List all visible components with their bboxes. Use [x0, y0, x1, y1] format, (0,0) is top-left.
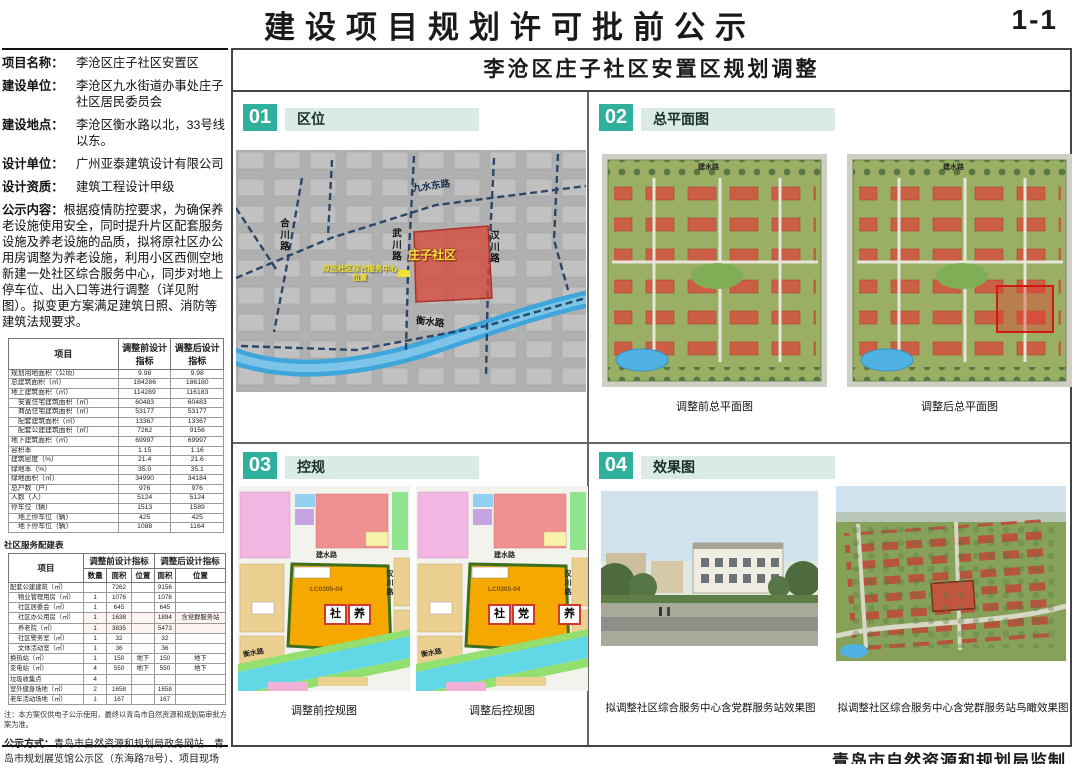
table-row: 商品住宅建筑面积（㎡）5317753177 — [9, 408, 224, 418]
info-line: 公示方式：青岛市自然资源和规划局政务网站、青岛市规划展览馆公示区（东海路78号）… — [4, 737, 226, 764]
section-number-badge: 01 — [243, 104, 277, 131]
table-row: 规划用地面积（公顷）9.989.98 — [9, 369, 224, 379]
section-header-02: 02 总平面图 — [599, 104, 835, 131]
section-label: 总平面图 — [641, 108, 835, 131]
section-label: 区位 — [285, 108, 479, 131]
render-street-view — [601, 491, 818, 646]
table-row: 社区办公用房（㎡）116381894含党群服务站 — [9, 613, 226, 623]
page-title: 建设项目规划许可批前公示 — [0, 2, 1020, 47]
section-location: 01 区位 — [233, 92, 589, 444]
caption-zoning-after: 调整后控规图 — [416, 702, 588, 718]
section-label: 效果图 — [641, 456, 835, 479]
section-label: 控规 — [285, 456, 479, 479]
location-map: 九水东路 合川路 武川路 汉川路 衡水路 庄子社区 拟选社区综合服务中心位置 — [236, 150, 586, 392]
table-row: 文体活动室（㎡）13636 — [9, 644, 226, 654]
siteplan-after-image — [847, 154, 1072, 387]
table-row: 停车位（辆）15131589 — [9, 504, 224, 514]
location-map-image — [236, 150, 586, 392]
table-row: 总建筑面积（㎡）184286186180 — [9, 379, 224, 389]
siteplan-after: 建水路 — [847, 154, 1072, 389]
section-renderings: 04 效果图 — [589, 444, 1070, 745]
indicator-table: 项目调整前设计指标调整后设计指标规划用地面积（公顷）9.989.98总建筑面积（… — [8, 338, 224, 533]
marker-yang: 养 — [558, 604, 581, 625]
project-info-panel: 项目名称：李沧区庄子社区安置区建设单位：李沧区九水街道办事处庄子社区居民委员会建… — [2, 48, 228, 747]
table-row: 社区警务室（㎡）13232 — [9, 633, 226, 643]
zoning-after-image — [416, 486, 588, 691]
table-row: 总户数（户）976976 — [9, 484, 224, 494]
section-number-badge: 02 — [599, 104, 633, 131]
table-row: 绿地面积（㎡）3499034184 — [9, 475, 224, 485]
info-line: 公示内容：根据疫情防控要求，为确保养老设施使用安全，同时提升片区配套服务设施及养… — [2, 203, 228, 331]
caption-render-aerial: 拟调整社区综合服务中心含党群服务站鸟瞰效果图 — [832, 700, 1074, 715]
caption-zoning-before: 调整前控规图 — [238, 702, 410, 718]
table-row: 室外健身场地（㎡）216581658 — [9, 684, 226, 694]
table-row: 配套公建建筑（㎡）72629156 — [9, 582, 226, 592]
zoning-after: 建水路 汉川路 衡水路 LC0305-04 社 党 养 — [416, 486, 588, 691]
info-line: 设计单位：广州亚泰建筑设计有限公司 — [2, 157, 228, 173]
section-header-04: 04 效果图 — [599, 452, 835, 479]
caption-siteplan-after: 调整后总平面图 — [847, 398, 1072, 414]
facility-table-caption: 社区服务配建表 — [4, 539, 228, 551]
render-aerial-view-image — [836, 486, 1066, 661]
table-row: 容积率1.151.16 — [9, 446, 224, 456]
table-row: 地下建筑面积（㎡）6999769997 — [9, 436, 224, 446]
drawing-panel: 李沧区庄子社区安置区规划调整 01 区位 — [231, 48, 1072, 747]
render-street-view-image — [601, 491, 818, 646]
table-row: 社区居委会（㎡）1645645 — [9, 603, 226, 613]
info-line: 设计资质：建筑工程设计甲级 — [2, 180, 228, 196]
plan-title: 李沧区庄子社区安置区规划调整 — [233, 50, 1070, 92]
info-line: 建设地点：李沧区衡水路以北，33号线以东。 — [2, 118, 228, 150]
section-header-01: 01 区位 — [243, 104, 479, 131]
project-info-list: 项目名称：李沧区庄子社区安置区建设单位：李沧区九水街道办事处庄子社区居民委员会建… — [2, 56, 228, 331]
sheet-number: 1-1 — [1012, 4, 1058, 36]
info-line: 项目名称：李沧区庄子社区安置区 — [2, 56, 228, 72]
siteplan-before-image — [602, 154, 827, 387]
zoning-before: 建水路 汉川路 衡水路 LC0305-04 社 养 — [238, 486, 410, 691]
table-row: 老年活动场地（㎡）1167167 — [9, 695, 226, 705]
siteplan-before: 建水路 — [602, 154, 827, 389]
table-row: 安置住宅建筑面积（㎡）6048360483 — [9, 398, 224, 408]
notice-board: 建设项目规划许可批前公示 1-1 项目名称：李沧区庄子社区安置区建设单位：李沧区… — [0, 0, 1080, 764]
table-row: 变电站（㎡）4550地下550地下 — [9, 664, 226, 674]
disclaimer-note: 注：本方案仅供电子公示使用，最终以青岛市自然资源和规划局审批方案为准。 — [4, 710, 228, 730]
table-row: 配套建筑面积（㎡）1336713367 — [9, 417, 224, 427]
caption-siteplan-before: 调整前总平面图 — [602, 398, 827, 414]
marker-she: 社 — [488, 604, 511, 625]
marker-she: 社 — [324, 604, 347, 625]
table-row: 配套公建建筑面积（㎡）72629156 — [9, 427, 224, 437]
table-row: 地上停车位（辆）425425 — [9, 513, 224, 523]
authority-credit: 青岛市自然资源和规划局监制 — [832, 747, 1066, 764]
marker-yang: 养 — [348, 604, 371, 625]
table-row: 人数（人）51245124 — [9, 494, 224, 504]
render-aerial-view — [836, 486, 1066, 661]
notice-info-block: 公示方式：青岛市自然资源和规划局政务网站、青岛市规划展览馆公示区（东海路78号）… — [4, 737, 226, 764]
table-row: 养老院（㎡）138355473 — [9, 623, 226, 633]
section-header-03: 03 控规 — [243, 452, 479, 479]
table-row: 垃圾收集点4 — [9, 674, 226, 684]
zoning-before-image — [238, 486, 410, 691]
table-row: 地上建筑面积（㎡）114289116183 — [9, 388, 224, 398]
facility-table: 项目调整前设计指标调整后设计指标数量面积位置面积位置配套公建建筑（㎡）72629… — [8, 553, 226, 705]
section-number-badge: 04 — [599, 452, 633, 479]
caption-render-street: 拟调整社区综合服务中心含党群服务站效果图 — [589, 700, 832, 715]
table-row: 物业管理用房（㎡）110761076 — [9, 593, 226, 603]
section-siteplan: 02 总平面图 建水路 — [589, 92, 1070, 444]
table-row: 地下停车位（辆）10881164 — [9, 523, 224, 533]
table-row: 换热站（㎡）1150地下150地下 — [9, 654, 226, 664]
marker-dang: 党 — [512, 604, 535, 625]
section-number-badge: 03 — [243, 452, 277, 479]
table-row: 建筑密度（%）21.421.6 — [9, 456, 224, 466]
info-line: 建设单位：李沧区九水街道办事处庄子社区居民委员会 — [2, 79, 228, 111]
section-zoning: 03 控规 — [233, 444, 589, 745]
table-row: 绿地率（%）35.035.1 — [9, 465, 224, 475]
